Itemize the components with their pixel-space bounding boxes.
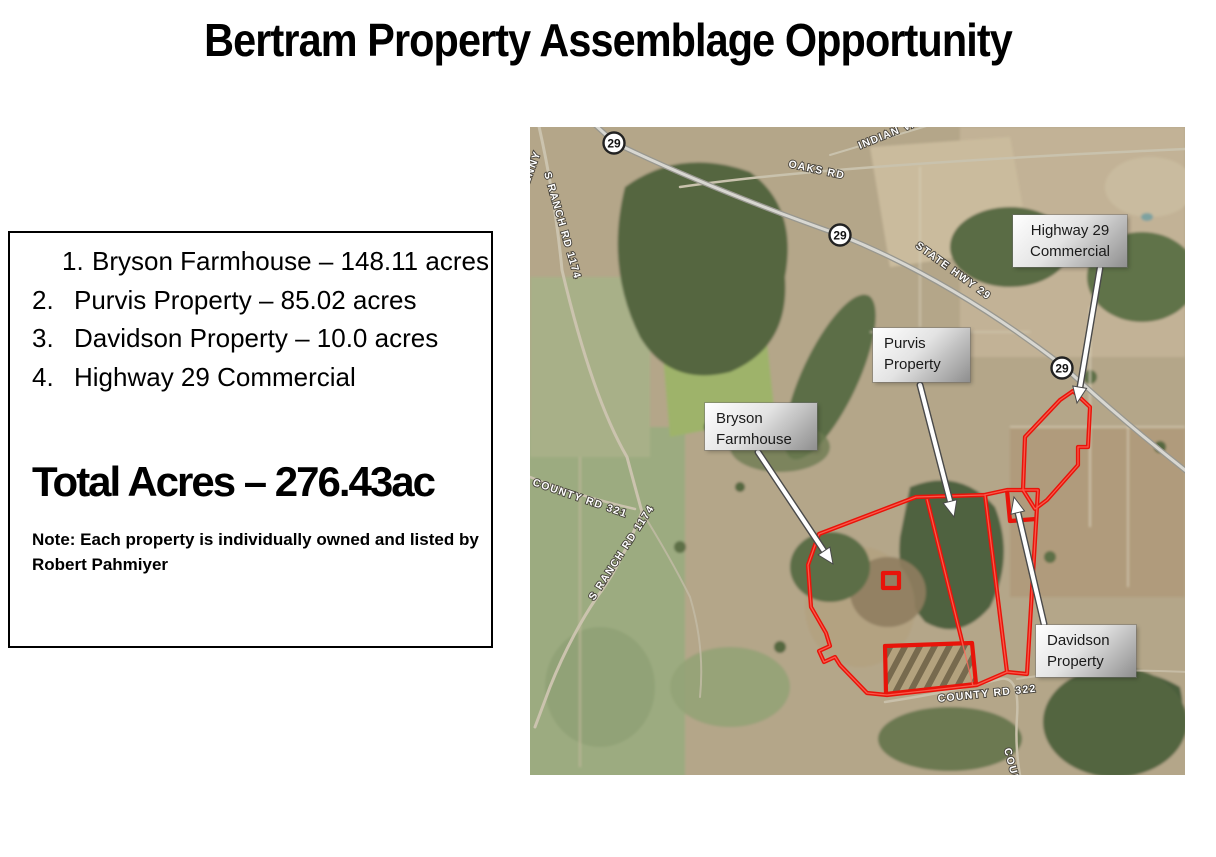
map-label-bryson-farmhouse: Bryson Farmhouse [705,403,817,450]
shield-label: 29 [607,137,621,151]
map-label-davidson-property: Davidson Property [1036,625,1136,677]
map-label-highway29-commercial: Highway 29 Commercial [1013,215,1127,267]
shield-label: 29 [1055,362,1069,376]
listing-note: Note: Each property is individually owne… [10,527,491,577]
list-text: Davidson Property – 10.0 acres [74,323,438,353]
list-text: Bryson Farmhouse – 148.11 acres [92,246,489,276]
list-number: 1. [32,242,84,281]
total-acres-line: Total Acres – 276.43ac [10,457,491,507]
list-text: Purvis Property – 85.02 acres [74,285,417,315]
page-title: Bertram Property Assemblage Opportunity [61,14,1155,66]
shield-label: 29 [833,229,847,243]
list-number: 4. [32,358,54,397]
list-item: 2.Purvis Property – 85.02 acres [10,281,491,320]
map-label-purvis-property: Purvis Property [873,328,970,382]
list-text: Highway 29 Commercial [74,362,356,392]
list-item: 3.Davidson Property – 10.0 acres [10,319,491,358]
list-item: 4.Highway 29 Commercial [10,358,491,397]
property-list-box: 1.Bryson Farmhouse – 148.11 acres 2.Purv… [8,231,493,648]
slide: Bertram Property Assemblage Opportunity … [0,0,1216,857]
list-number: 2. [32,281,54,320]
satellite-map: COUNTY RD 322 29 [530,127,1185,775]
list-item: 1.Bryson Farmhouse – 148.11 acres [10,242,491,281]
list-number: 3. [32,319,54,358]
